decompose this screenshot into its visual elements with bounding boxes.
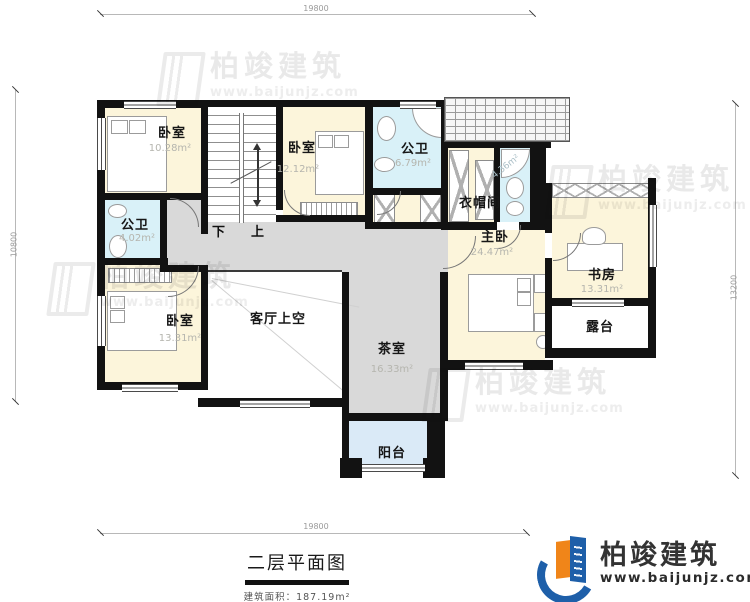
- room-label-master-bedroom: 主卧: [455, 230, 535, 246]
- stair-rail: [239, 113, 244, 223]
- dimension-label-right: 13200: [730, 258, 739, 318]
- room-label-living-room-void: 客厅上空: [218, 312, 338, 328]
- watermark-building-icon: [46, 262, 96, 316]
- window: [122, 384, 178, 392]
- wall: [201, 100, 208, 234]
- company-url: www.baijunjz.com: [600, 570, 750, 586]
- company-logo: 柏竣建筑 www.baijunjz.com: [536, 534, 750, 594]
- room-label-terrace: 露台: [558, 320, 642, 336]
- room-area-master-bedroom: 24.47m²: [452, 247, 532, 258]
- wall: [97, 193, 208, 200]
- room-area-tea-room: 16.33m²: [352, 364, 432, 375]
- logo-building-blue-icon: [570, 536, 586, 583]
- wall: [441, 222, 497, 230]
- room-label-bath-top: 公卫: [375, 142, 455, 158]
- room-area-bath-top: 6.79m²: [373, 158, 453, 169]
- plan-title: 二层平面图: [197, 549, 397, 575]
- watermark-name: 柏竣建筑: [100, 262, 249, 291]
- room-area-bedroom-bottom-left: 13.31m²: [140, 333, 220, 344]
- watermark-url: www.baijunjz.com: [100, 295, 249, 310]
- dimension-label-bottom: 19800: [280, 522, 352, 531]
- room-label-cloakroom: 衣帽间: [438, 196, 522, 212]
- watermark-building-icon: [421, 368, 471, 422]
- window: [572, 299, 624, 307]
- room-label-study: 书房: [562, 268, 642, 284]
- watermark-building-icon: [544, 165, 594, 219]
- company-logo-icon: [536, 534, 596, 594]
- room-label-balcony: 阳台: [350, 446, 434, 462]
- window: [362, 464, 425, 472]
- wall: [365, 100, 373, 222]
- watermark-building-icon: [156, 52, 206, 106]
- watermark-url: www.baijunjz.com: [475, 401, 624, 416]
- dimension-line-top: [100, 14, 533, 15]
- roof-hatch: [444, 97, 570, 142]
- stairs-up-label: 上: [251, 221, 264, 240]
- dimension-line-bottom: [100, 533, 527, 534]
- room-area-bedroom-top-middle: 12.12m²: [258, 164, 338, 175]
- building-area-line: 建筑面积：187.19m²: [197, 589, 397, 602]
- stair-arrow-up: [253, 143, 261, 150]
- wall: [545, 348, 656, 358]
- window: [240, 400, 310, 408]
- furniture: [517, 292, 531, 306]
- room-label-bedroom-bottom-left: 卧室: [140, 314, 220, 330]
- bath-fixture: [377, 116, 396, 141]
- watermark-name: 柏竣建筑: [475, 368, 624, 397]
- watermark: 柏竣建筑 www.baijunjz.com: [160, 52, 359, 106]
- title-underline: [245, 580, 349, 585]
- room-area-study: 13.31m²: [562, 284, 642, 295]
- building-area-label: 建筑面积：: [244, 592, 297, 602]
- wall: [342, 272, 349, 421]
- wall: [519, 222, 538, 230]
- bath-fixture: [108, 204, 127, 218]
- watermark-name: 柏竣建筑: [210, 52, 359, 81]
- floor-plan-canvas: 柏竣建筑 www.baijunjz.com 柏竣建筑 www.baijunjz.…: [0, 0, 750, 602]
- room-area-bedroom-top-left: 10.28m²: [130, 143, 210, 154]
- watermark: 柏竣建筑 www.baijunjz.com: [425, 368, 624, 422]
- watermark: 柏竣建筑 www.baijunjz.com: [50, 262, 249, 316]
- wall: [545, 258, 552, 358]
- watermark-url: www.baijunjz.com: [598, 198, 747, 213]
- building-area-value: 187.19m²: [296, 592, 350, 602]
- title-block: 二层平面图 建筑面积：187.19m²: [197, 549, 397, 602]
- wall: [276, 215, 366, 222]
- furniture: [111, 120, 128, 134]
- dimension-label-top: 19800: [280, 4, 352, 13]
- wall: [440, 272, 448, 368]
- window: [97, 118, 106, 170]
- room-area-bath-left: 4.02m²: [99, 233, 175, 244]
- watermark-url: www.baijunjz.com: [210, 85, 359, 100]
- room-label-bath-left: 公卫: [97, 218, 173, 234]
- dimension-label-left: 10800: [10, 215, 19, 275]
- stairs-down-label: 下: [212, 221, 225, 240]
- stair-arrow-line: [257, 150, 259, 200]
- watermark: 柏竣建筑 www.baijunjz.com: [548, 165, 747, 219]
- window: [400, 101, 436, 109]
- room-label-bedroom-top-middle: 卧室: [262, 141, 342, 157]
- room-label-tea-room: 茶室: [352, 342, 432, 358]
- stair-arrow-down: [253, 200, 261, 207]
- room-label-bedroom-top-left: 卧室: [132, 126, 212, 142]
- wall: [365, 222, 448, 229]
- furniture: [517, 278, 531, 292]
- logo-building-orange-icon: [556, 540, 570, 579]
- watermark-name: 柏竣建筑: [598, 165, 747, 194]
- company-name: 柏竣建筑: [600, 542, 750, 570]
- desk-chair: [582, 227, 606, 245]
